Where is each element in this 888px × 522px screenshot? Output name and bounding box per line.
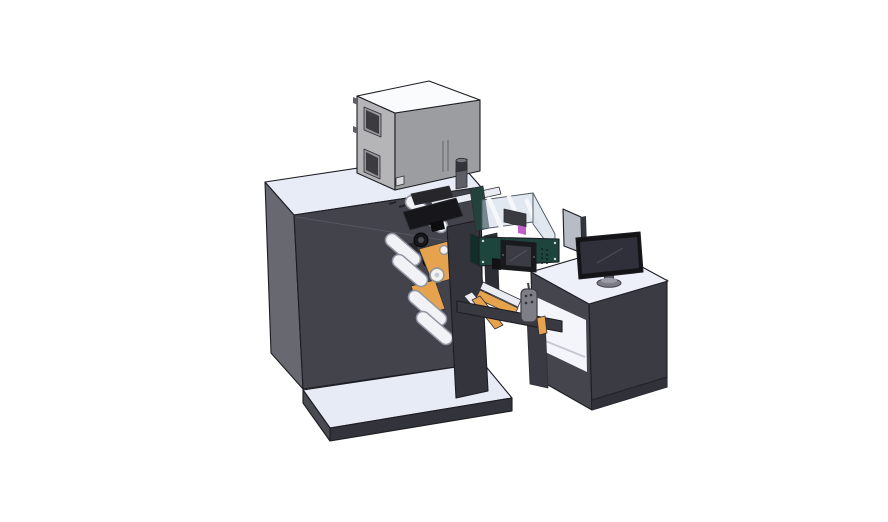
vent-dot: [541, 257, 543, 259]
pendant-button: [531, 301, 534, 304]
pendant-remote: [521, 289, 537, 322]
exhaust-cylinder-top: [456, 158, 467, 162]
pendant-button: [525, 302, 528, 305]
pendant-button: [525, 295, 528, 298]
vent-dot: [546, 258, 548, 260]
hmi-connector: [492, 258, 501, 270]
monitor-base-top: [601, 278, 617, 284]
electrical-cabinet: [353, 81, 480, 190]
vent-dot: [546, 262, 548, 264]
vent-dot: [541, 253, 543, 255]
pendant-strap: [528, 283, 529, 289]
hmi-bezel-screw-2: [533, 256, 535, 258]
hmi-screw-1: [482, 240, 484, 242]
hmi-screw-2: [554, 242, 556, 244]
roller-endcap-2-face: [440, 246, 447, 253]
web-orange-tab: [537, 316, 547, 335]
cad-render-canvas: [0, 0, 888, 522]
printhead-gear-1-hub: [418, 237, 424, 243]
vent-dot: [546, 254, 548, 256]
cabinet-corner-plate: [396, 176, 404, 186]
hmi-screw-4: [554, 258, 556, 260]
hmi-bezel-screw-1: [502, 254, 504, 256]
roller-endcap-1-hub: [435, 273, 440, 278]
pendant-button: [530, 294, 533, 297]
vent-dot: [541, 248, 543, 250]
hmi-enclosure-side: [470, 233, 479, 266]
vent-dot: [546, 249, 548, 251]
machine-render: [0, 0, 888, 522]
vent-dot: [541, 262, 543, 264]
hmi-screw-3: [482, 261, 484, 263]
